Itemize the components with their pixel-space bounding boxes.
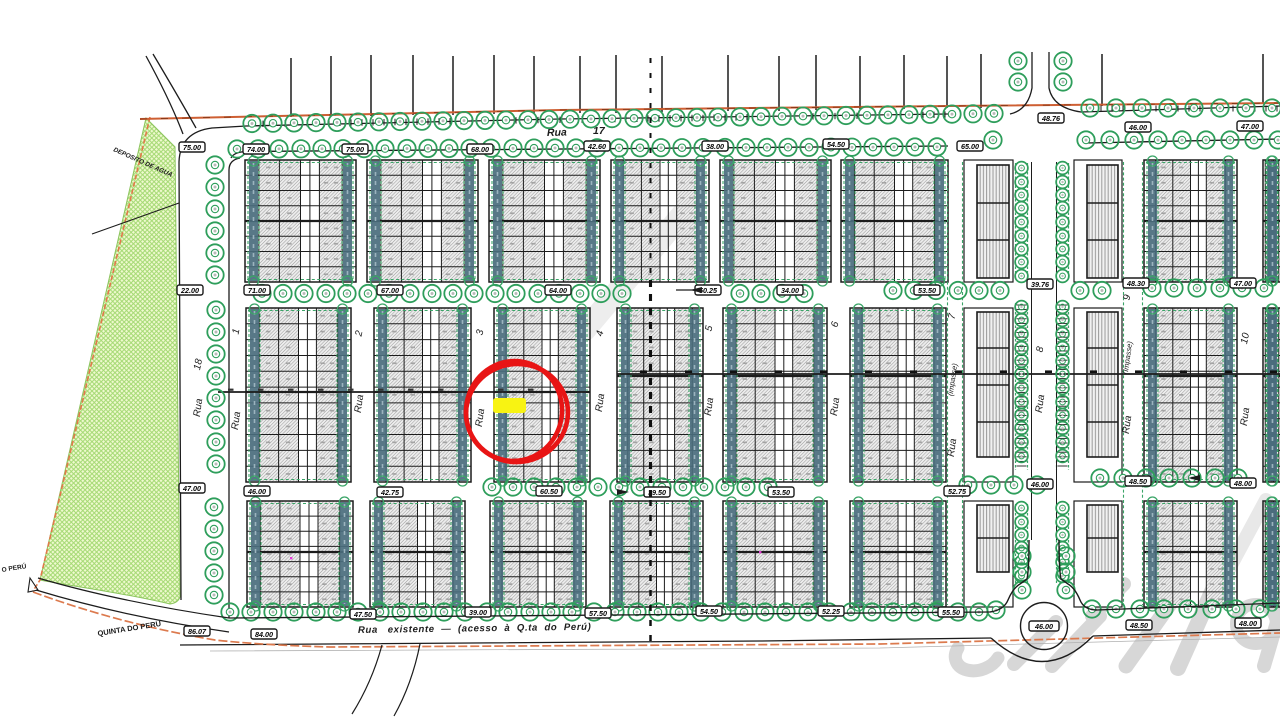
svg-text:42.60: 42.60: [587, 142, 606, 151]
svg-text:55.50: 55.50: [942, 608, 960, 617]
svg-text:75.00: 75.00: [346, 145, 364, 154]
svg-text:52.25: 52.25: [822, 607, 841, 616]
svg-text:48.30: 48.30: [1126, 279, 1145, 288]
svg-text:52.75: 52.75: [948, 487, 967, 496]
svg-text:48.76: 48.76: [1041, 114, 1061, 123]
svg-text:86.07: 86.07: [188, 627, 207, 636]
svg-text:47.00: 47.00: [182, 484, 201, 493]
svg-text:67.00: 67.00: [381, 286, 399, 295]
svg-text:47.00: 47.00: [1240, 122, 1259, 131]
svg-text:39.00: 39.00: [469, 608, 487, 617]
svg-text:46.00: 46.00: [247, 487, 266, 496]
svg-text:48.00: 48.00: [1233, 479, 1252, 488]
svg-text:47.50: 47.50: [353, 610, 372, 619]
svg-text:57.50: 57.50: [589, 609, 607, 618]
svg-text:47.00: 47.00: [1233, 279, 1252, 288]
svg-text:39.76: 39.76: [1031, 280, 1050, 289]
svg-text:48.50: 48.50: [1129, 621, 1148, 630]
svg-text:34.00: 34.00: [781, 286, 799, 295]
svg-text:84.00: 84.00: [255, 630, 273, 639]
svg-text:60.50: 60.50: [540, 487, 558, 496]
svg-text:48.50: 48.50: [1128, 477, 1147, 486]
svg-text:46.00: 46.00: [1128, 123, 1147, 132]
svg-text:54.50: 54.50: [827, 140, 845, 149]
svg-text:68.00: 68.00: [471, 145, 489, 154]
svg-text:46.00: 46.00: [1030, 480, 1049, 489]
svg-text:38.00: 38.00: [706, 142, 724, 151]
svg-text:75.00: 75.00: [183, 143, 201, 152]
svg-text:53.50: 53.50: [772, 488, 790, 497]
svg-text:46.00: 46.00: [1034, 622, 1053, 631]
svg-text:74.00: 74.00: [247, 145, 265, 154]
svg-text:65.00: 65.00: [961, 142, 979, 151]
svg-text:71.00: 71.00: [248, 286, 266, 295]
svg-text:42.75: 42.75: [380, 488, 400, 497]
svg-text:22.00: 22.00: [180, 286, 199, 295]
svg-text:48.00: 48.00: [1238, 619, 1257, 628]
svg-text:54.50: 54.50: [700, 607, 718, 616]
svg-text:64.00: 64.00: [549, 286, 567, 295]
svg-text:53.50: 53.50: [918, 286, 936, 295]
